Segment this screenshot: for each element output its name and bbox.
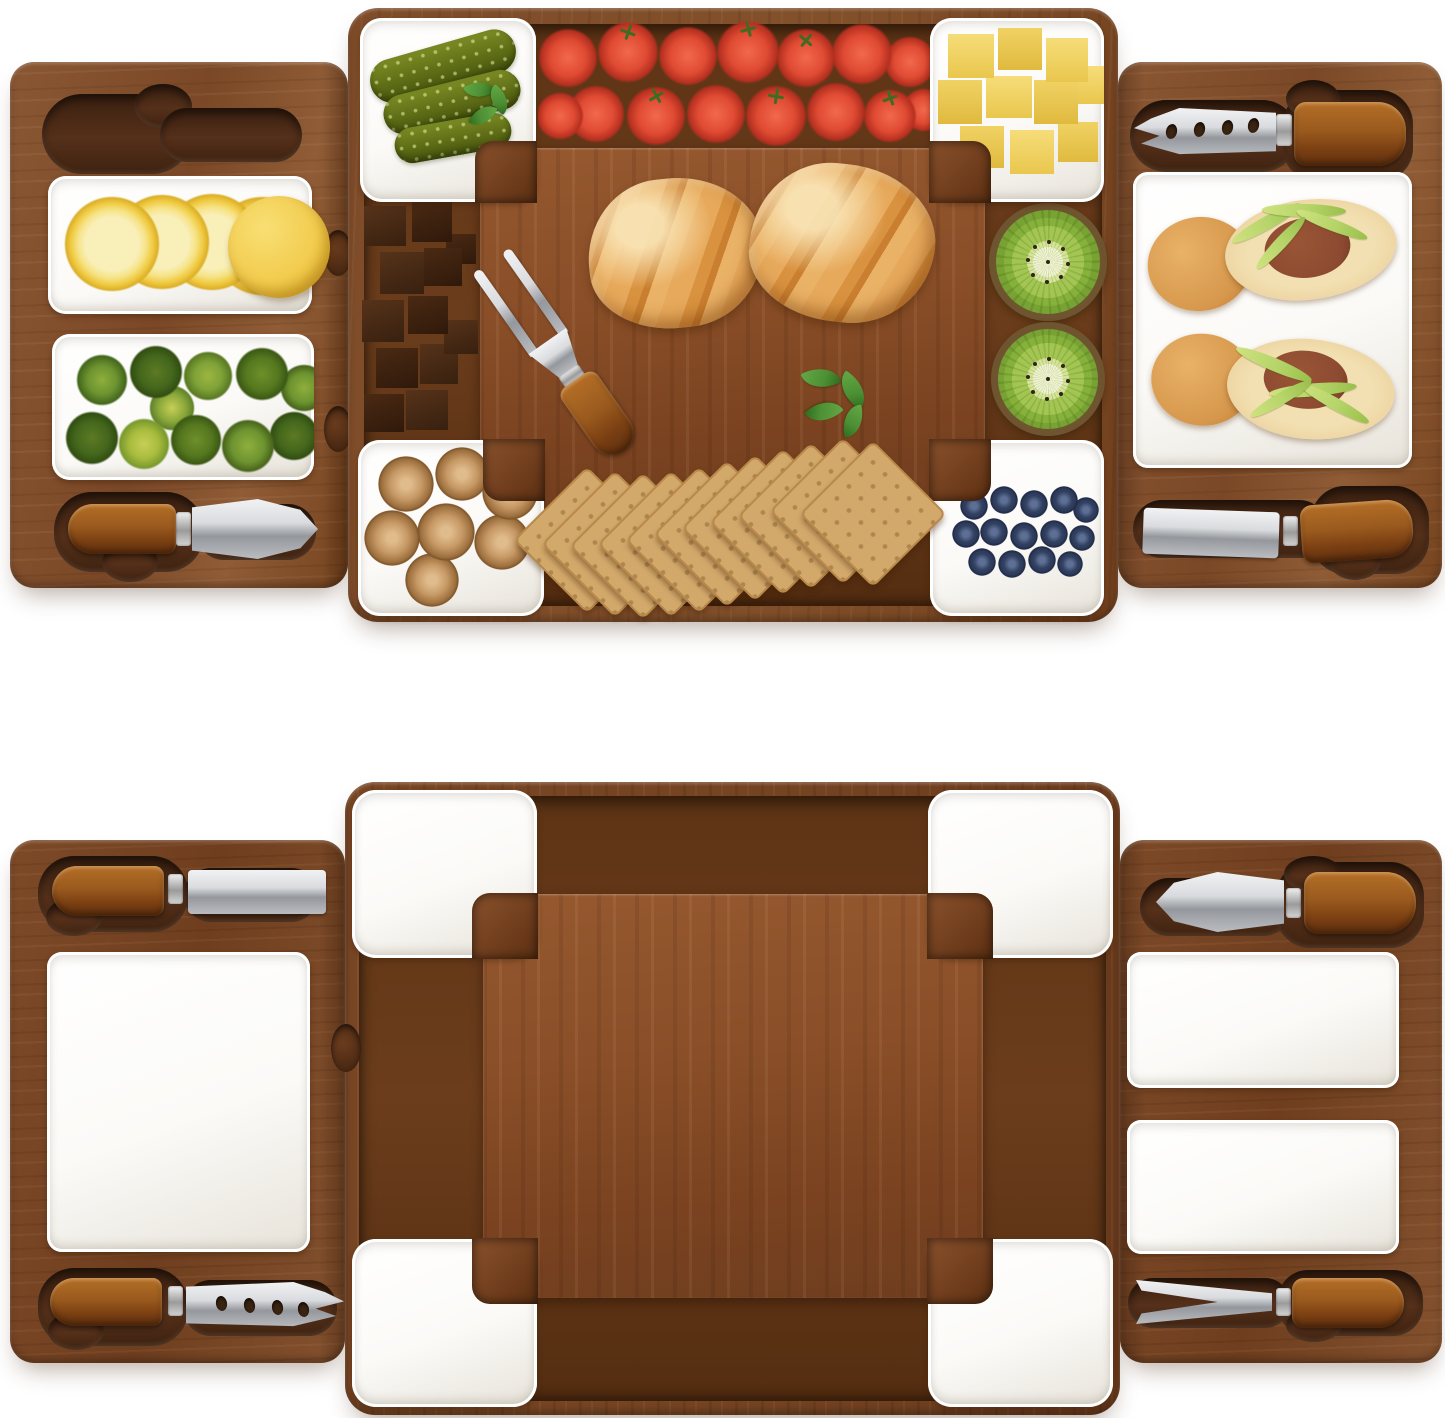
fork-slot (1128, 1270, 1428, 1340)
rect-tray (1127, 952, 1399, 1088)
spreader-handle (52, 866, 164, 916)
fork-handle (1292, 1278, 1404, 1328)
spade-knife-slot (1136, 856, 1428, 950)
spreader-slot (38, 852, 323, 936)
corner-dish (928, 1239, 1113, 1407)
center-board (345, 782, 1120, 1415)
left-side-tray (10, 840, 345, 1363)
right-side-tray (1120, 840, 1442, 1363)
board-pull-notch (331, 1024, 361, 1072)
view-empty-board (0, 0, 1445, 1418)
cutting-board (483, 894, 983, 1298)
square-plate (47, 952, 310, 1252)
knife-collar (168, 1286, 183, 1316)
corner-dish (352, 1239, 537, 1407)
knife-handle (50, 1278, 162, 1326)
corner-dish (928, 790, 1113, 958)
spreader-blade (188, 870, 326, 914)
dish-corner-cutout (927, 893, 993, 959)
knife-collar (168, 874, 183, 904)
knife-handle (1304, 872, 1416, 934)
dish-corner-cutout (472, 1238, 538, 1304)
product-photo (0, 0, 1445, 1418)
holes-knife-slot (38, 1260, 338, 1352)
fork-collar (1276, 1288, 1291, 1316)
dish-corner-cutout (927, 1238, 993, 1304)
rect-tray (1127, 1120, 1399, 1254)
corner-dish (352, 790, 537, 958)
knife-collar (1286, 888, 1301, 918)
dish-corner-cutout (472, 893, 538, 959)
